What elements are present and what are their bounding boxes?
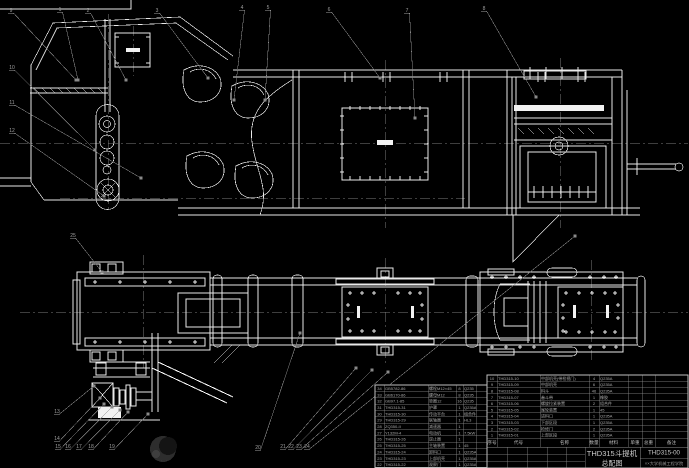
svg-text:Y132M-4: Y132M-4	[385, 430, 402, 435]
svg-text:33: 33	[377, 392, 382, 397]
svg-text:螺母M12: 螺母M12	[429, 391, 446, 397]
svg-text:GB5782-86: GB5782-86	[385, 386, 406, 391]
svg-text:THD315-07: THD315-07	[498, 395, 519, 400]
svg-text:传动平台: 传动平台	[429, 410, 445, 416]
svg-text:序号: 序号	[487, 439, 497, 446]
svg-text:25: 25	[70, 233, 76, 239]
svg-text:12: 12	[9, 128, 15, 134]
svg-text:上部机壳: 上部机壳	[429, 455, 445, 461]
svg-text:4: 4	[241, 5, 244, 11]
svg-text:Q235A: Q235A	[464, 405, 477, 410]
svg-text:THD315-08: THD315-08	[498, 389, 519, 394]
svg-text:备注: 备注	[667, 439, 677, 446]
svg-text:6: 6	[328, 7, 331, 13]
svg-text:卸料口: 卸料口	[429, 448, 441, 454]
takeup-screw-handle	[627, 158, 676, 175]
svg-text:45: 45	[464, 443, 469, 448]
svg-text:逆止器: 逆止器	[429, 436, 441, 442]
svg-text:进料口: 进料口	[541, 413, 553, 419]
svg-text:16: 16	[457, 399, 462, 404]
svg-text:料斗: 料斗	[541, 388, 549, 394]
svg-text:17: 17	[76, 444, 82, 450]
svg-text:THD315-04: THD315-04	[498, 414, 519, 419]
svg-text:11: 11	[9, 100, 14, 106]
svg-text:32: 32	[377, 399, 382, 404]
svg-text:Q235A: Q235A	[464, 462, 477, 467]
svg-text:7: 7	[406, 8, 409, 14]
svg-text:THD315-06: THD315-06	[498, 401, 519, 406]
drawing-frame-corner	[0, 0, 131, 9]
svg-text:中部机壳: 中部机壳	[541, 381, 557, 387]
svg-text:THD315-30: THD315-30	[385, 411, 406, 416]
svg-text:18: 18	[88, 444, 94, 450]
svg-text:21: 21	[280, 444, 286, 450]
svg-text:23: 23	[296, 444, 302, 450]
svg-text:尾轮装置: 尾轮装置	[541, 406, 557, 412]
svg-text:10: 10	[9, 65, 15, 71]
svg-text:8: 8	[483, 6, 486, 12]
svg-text:Q235: Q235	[464, 399, 475, 404]
svg-text:电动机: 电动机	[429, 429, 441, 435]
svg-text:THD315-25: THD315-25	[385, 443, 406, 448]
svg-text:19: 19	[109, 444, 115, 450]
boot-cover-plate	[558, 287, 623, 338]
svg-text:28: 28	[377, 424, 382, 429]
svg-text:15: 15	[55, 444, 61, 450]
svg-text:畚斗带: 畚斗带	[541, 394, 553, 400]
svg-text:总重: 总重	[644, 439, 654, 445]
svg-text:29: 29	[377, 418, 382, 423]
svg-text:24: 24	[377, 449, 382, 454]
svg-text:观察门: 观察门	[429, 461, 441, 467]
title-block-product: THD315斗提机	[587, 448, 638, 458]
svg-text:检修门: 检修门	[541, 425, 553, 431]
svg-text:10: 10	[490, 376, 495, 381]
svg-text:45: 45	[600, 407, 605, 412]
svg-text:31: 31	[377, 405, 382, 410]
svg-text:GB97.1-85: GB97.1-85	[385, 399, 405, 404]
svg-text:垫圈12: 垫圈12	[429, 398, 442, 404]
svg-text:Q235A: Q235A	[600, 414, 613, 419]
buckets	[183, 66, 292, 215]
support-brace	[152, 362, 233, 403]
svg-text:14: 14	[54, 436, 60, 442]
svg-text:23: 23	[377, 456, 382, 461]
svg-text:护罩: 护罩	[429, 404, 437, 410]
svg-text:22: 22	[288, 444, 294, 450]
svg-text:Q235: Q235	[464, 392, 475, 397]
svg-text:Q235A: Q235A	[464, 449, 477, 454]
drawing-number: THD315-00	[648, 450, 681, 457]
svg-text:Q235A: Q235A	[600, 376, 613, 381]
svg-text:THD315-05: THD315-05	[498, 407, 519, 412]
svg-text:数量: 数量	[589, 439, 599, 446]
svg-text:1: 1	[59, 7, 62, 13]
svg-text:26: 26	[377, 437, 382, 442]
svg-text:30: 30	[377, 411, 382, 416]
cad-drawing-viewport: 1234567891011121314151617181920212223242…	[0, 0, 689, 468]
svg-text:下部区段: 下部区段	[541, 419, 557, 425]
svg-text:5: 5	[267, 5, 270, 11]
svg-text:THD315-22: THD315-22	[385, 462, 406, 467]
svg-text:联轴器: 联轴器	[429, 417, 441, 423]
svg-text:ZQ350-II: ZQ350-II	[385, 424, 401, 429]
svg-text:9: 9	[10, 8, 13, 14]
svg-text:组合件: 组合件	[600, 400, 612, 406]
svg-text:Q235A: Q235A	[600, 382, 613, 387]
svg-text:GB6170-86: GB6170-86	[385, 392, 406, 397]
svg-text:橡胶: 橡胶	[600, 394, 608, 400]
svg-text:上部区段: 上部区段	[541, 432, 557, 438]
svg-text:THD315-31: THD315-31	[385, 405, 406, 410]
svg-text:25: 25	[377, 443, 382, 448]
svg-text:13: 13	[54, 409, 60, 415]
svg-text:Q235A: Q235A	[600, 426, 613, 431]
svg-text:3: 3	[156, 8, 159, 14]
svg-text:THD315-03: THD315-03	[498, 420, 519, 425]
bucket-elevator-assembly-drawing: 1234567891011121314151617181920212223242…	[0, 0, 689, 468]
svg-text:16: 16	[65, 444, 71, 450]
svg-text:代号: 代号	[514, 439, 524, 446]
svg-text:Q235A: Q235A	[600, 389, 613, 394]
casing-s-wall	[251, 80, 292, 215]
svg-text:THD315-24: THD315-24	[385, 449, 406, 454]
svg-text:组合件: 组合件	[464, 410, 476, 416]
svg-text:螺旋拉紧装置: 螺旋拉紧装置	[541, 400, 565, 406]
svg-text:27: 27	[377, 430, 382, 435]
svg-text:46: 46	[592, 389, 597, 394]
svg-text:Q235A: Q235A	[464, 456, 477, 461]
svg-text:Q235: Q235	[464, 386, 475, 391]
sprocket-wheel	[99, 116, 115, 132]
casing-front	[178, 70, 640, 215]
title-block-sheet: 总配图	[602, 459, 623, 468]
svg-text:24: 24	[304, 444, 310, 450]
svg-text:2: 2	[87, 8, 90, 14]
svg-text:22: 22	[377, 462, 382, 467]
svg-text:材料: 材料	[609, 439, 619, 446]
svg-text:THD315-10: THD315-10	[498, 376, 519, 381]
svg-text:THD315-01: THD315-01	[498, 433, 519, 438]
svg-text:名称: 名称	[560, 439, 570, 446]
svg-text:THD315-02: THD315-02	[498, 426, 519, 431]
front-view	[0, 17, 683, 262]
boot-section-front	[513, 67, 683, 262]
svg-text:中部机壳(带检视门): 中部机壳(带检视门)	[541, 375, 576, 381]
casing-plan	[210, 268, 645, 363]
svg-text:Q235A: Q235A	[600, 433, 613, 438]
title-block-org: ××大学机械工程学院	[645, 460, 684, 467]
svg-text:20: 20	[255, 445, 261, 451]
head-section	[0, 17, 233, 210]
svg-text:螺栓M12×45: 螺栓M12×45	[429, 385, 452, 391]
svg-text:THD315-26: THD315-26	[385, 437, 406, 442]
watermark-blob	[150, 436, 177, 462]
svg-text:减速器: 减速器	[429, 423, 441, 429]
svg-text:THD315-23: THD315-23	[385, 456, 406, 461]
bom-tables: 34GB5782-86螺栓M12×458Q23533GB6170-86螺母M12…	[375, 375, 688, 468]
svg-text:7.5kW: 7.5kW	[464, 430, 476, 435]
svg-text:THD315-29: THD315-29	[385, 418, 406, 423]
svg-text:Q235A: Q235A	[600, 420, 613, 425]
svg-text:34: 34	[377, 386, 382, 391]
svg-text:THD315-09: THD315-09	[498, 382, 519, 387]
svg-text:主轴装置: 主轴装置	[429, 442, 445, 448]
svg-text:单重: 单重	[630, 439, 640, 446]
inlet-chute	[513, 215, 559, 262]
svg-text:HL3: HL3	[464, 418, 472, 423]
